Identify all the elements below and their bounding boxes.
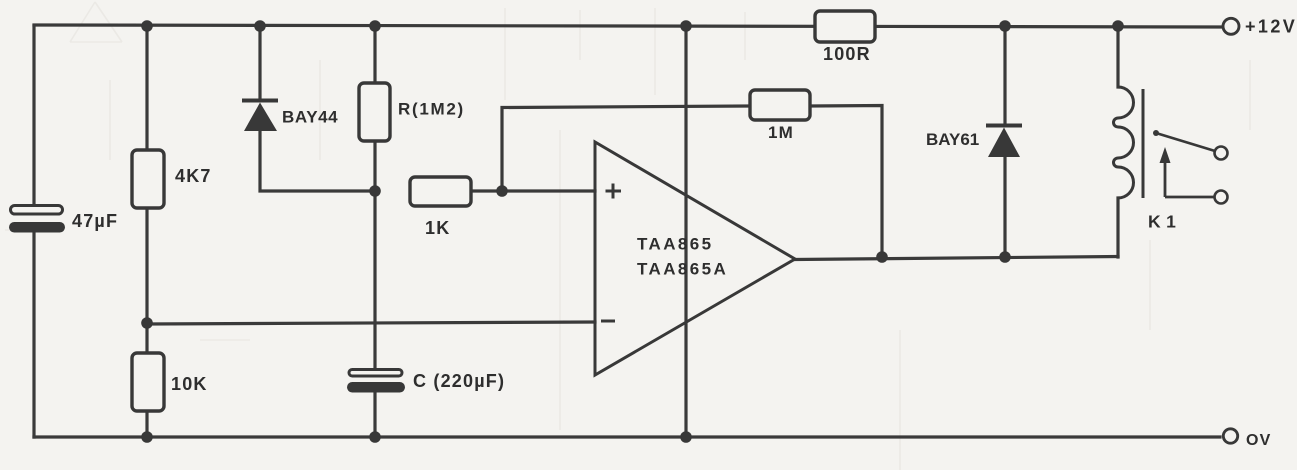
svg-text:OV: OV [1246, 432, 1272, 449]
svg-text:1K: 1K [425, 218, 450, 238]
svg-text:47µF: 47µF [72, 211, 118, 231]
svg-text:TAA865: TAA865 [637, 235, 713, 254]
svg-text:C (220µF): C (220µF) [413, 371, 505, 391]
svg-text:4K7: 4K7 [175, 166, 212, 186]
svg-text:+12V: +12V [1245, 17, 1297, 37]
svg-text:BAY61: BAY61 [926, 130, 979, 149]
svg-text:K1: K1 [1148, 212, 1181, 232]
svg-text:R(1M2): R(1M2) [398, 100, 465, 119]
svg-text:100R: 100R [823, 44, 871, 64]
svg-text:TAA865A: TAA865A [637, 260, 728, 279]
svg-text:10K: 10K [171, 374, 208, 394]
svg-text:BAY44: BAY44 [282, 108, 338, 127]
svg-text:1M: 1M [768, 123, 794, 142]
